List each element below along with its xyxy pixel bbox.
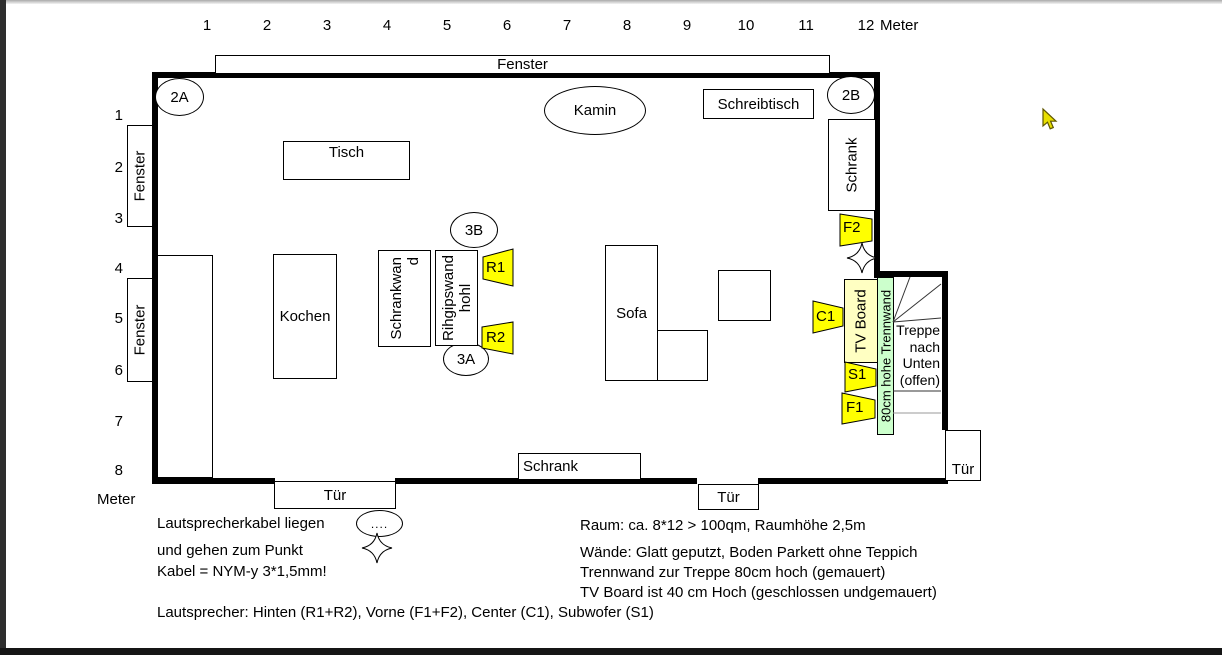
speaker-r2-label: R2 (486, 329, 505, 346)
ruler-top-label: 9 (683, 17, 691, 34)
marker-3a-label: 3A (457, 351, 475, 368)
window-left-lower: Fenster (127, 278, 153, 382)
wall-stair-right (942, 271, 948, 430)
left-wall-unit (157, 255, 213, 478)
wall-bottom-segment (758, 478, 948, 484)
star-marker-bottom (362, 533, 392, 563)
screen-edge-top (0, 0, 1222, 4)
cabinet-wall-label: Schrankwand (387, 257, 422, 341)
desk: Schreibtisch (703, 89, 814, 119)
ruler-left-unit: Meter (97, 491, 135, 508)
ruler-top-unit: Meter (880, 17, 918, 34)
drywall-partition-label: Rihgipswand hohl (439, 253, 474, 343)
note-room-3: Trennwand zur Treppe 80cm hoch (gemauert… (580, 564, 885, 581)
screen-edge-bottom (0, 648, 1222, 655)
ruler-left-label: 1 (115, 107, 123, 124)
ruler-top-label: 11 (798, 17, 814, 34)
window-left-upper: Fenster (127, 125, 153, 227)
cable-point-marker: .... (356, 510, 403, 537)
marker-2a: 2A (155, 78, 204, 116)
ruler-top-label: 7 (563, 17, 571, 34)
ruler-top-label: 6 (503, 17, 511, 34)
ruler-top-label: 2 (263, 17, 271, 34)
window-left-upper-label: Fenster (132, 151, 149, 202)
fireplace-label: Kamin (574, 102, 617, 119)
speaker-c1-label: C1 (816, 308, 835, 325)
fireplace: Kamin (544, 86, 646, 135)
ruler-top-label: 3 (323, 17, 331, 34)
side-table (718, 270, 771, 321)
note-cable-1: Lautsprecherkabel liegen (157, 515, 325, 532)
door-label: Tür (324, 487, 347, 504)
window-top-label: Fenster (497, 56, 548, 73)
speaker-s1-label: S1 (848, 366, 866, 383)
speaker-f1-label: F1 (846, 399, 864, 416)
cabinet-right: Schrank (828, 119, 876, 211)
window-left-lower-label: Fenster (132, 305, 149, 356)
note-room-2: Wände: Glatt geputzt, Boden Parkett ohne… (580, 544, 917, 561)
note-cable-3: Kabel = NYM-y 3*1,5mm! (157, 563, 327, 580)
marker-3b-label: 3B (465, 222, 483, 239)
marker-3a: 3A (443, 342, 489, 376)
marker-3b: 3B (450, 212, 498, 248)
floor-plan-canvas: 1 2 3 4 5 6 7 8 9 10 11 12 Meter 1 2 3 4… (0, 0, 1222, 655)
door-label: Tür (717, 489, 740, 506)
kitchen-label: Kochen (280, 308, 331, 325)
cabinet-right-label: Schrank (844, 137, 861, 192)
screen-edge-left (0, 0, 6, 655)
ruler-top-label: 12 (858, 17, 875, 34)
door-bottom-right: Tür (698, 484, 759, 510)
door-label: Tür (952, 461, 975, 478)
ruler-left-label: 4 (115, 260, 123, 277)
ruler-top-label: 10 (738, 17, 755, 34)
ruler-top-label: 4 (383, 17, 391, 34)
kitchen-block: Kochen (273, 254, 337, 379)
wall-bottom-segment (152, 478, 275, 484)
ruler-left-label: 6 (115, 362, 123, 379)
cabinet-bottom: Schrank (518, 453, 641, 480)
ruler-top-label: 8 (623, 17, 631, 34)
note-room-1: Raum: ca. 8*12 > 100qm, Raumhöhe 2,5m (580, 517, 866, 534)
speaker-f2-label: F2 (843, 219, 861, 236)
sofa-extension (657, 330, 708, 381)
mouse-cursor-icon (1043, 109, 1056, 129)
marker-2a-label: 2A (170, 89, 188, 106)
ruler-left-label: 7 (115, 413, 123, 430)
note-room-4: TV Board ist 40 cm Hoch (geschlossen und… (580, 584, 937, 601)
cabinet-bottom-label: Schrank (523, 458, 578, 475)
sofa-label: Sofa (616, 305, 647, 322)
ruler-left-label: 8 (115, 462, 123, 479)
note-cable-2: und gehen zum Punkt (157, 542, 303, 559)
ruler-left-label: 5 (115, 310, 123, 327)
door-bottom-left: Tür (274, 481, 396, 509)
stairs-label: Treppe nach Unten (offen) (884, 322, 940, 388)
star-marker-right (847, 243, 877, 273)
sofa: Sofa (605, 245, 658, 381)
ruler-top-label: 1 (203, 17, 211, 34)
table: Tisch (283, 141, 410, 180)
speakers-legend: Lautsprecher: Hinten (R1+R2), Vorne (F1+… (157, 604, 654, 621)
desk-label: Schreibtisch (718, 96, 800, 113)
door-right: Tür (945, 430, 981, 481)
marker-2b-label: 2B (842, 87, 860, 104)
tv-board: TV Board (844, 279, 878, 363)
marker-2b: 2B (827, 76, 875, 114)
ruler-top-label: 5 (443, 17, 451, 34)
ruler-left-label: 2 (115, 159, 123, 176)
cabinet-wall: Schrankwand (378, 250, 431, 347)
cable-point-dots: .... (371, 517, 388, 531)
window-top: Fenster (215, 55, 830, 74)
table-label: Tisch (329, 144, 364, 161)
ruler-left-label: 3 (115, 210, 123, 227)
tv-board-label: TV Board (853, 289, 870, 352)
speaker-r1-label: R1 (486, 259, 505, 276)
drywall-partition: Rihgipswand hohl (435, 250, 478, 346)
